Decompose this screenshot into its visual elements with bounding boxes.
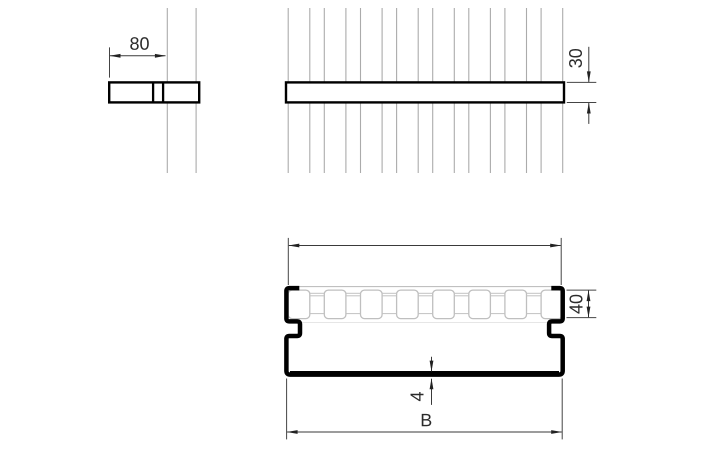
svg-text:B: B: [420, 410, 432, 430]
svg-text:40: 40: [567, 294, 587, 314]
svg-text:80: 80: [129, 34, 149, 54]
svg-text:4: 4: [407, 391, 427, 401]
svg-text:30: 30: [566, 48, 586, 68]
